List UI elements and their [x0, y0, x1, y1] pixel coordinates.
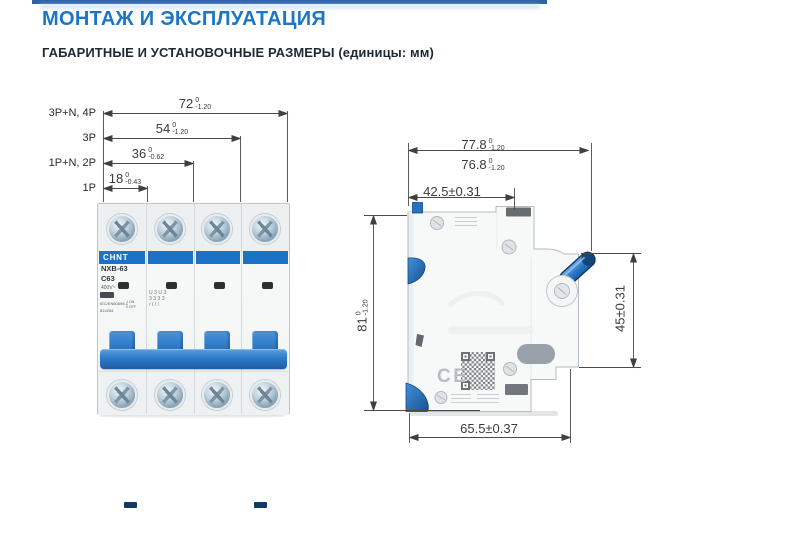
dim-36-tol-upper: 0: [148, 147, 164, 154]
dim-36-tol-lower: -0.62: [148, 154, 164, 161]
module2-marks-3: ////: [149, 302, 161, 308]
dim-81: 81 0-1.20: [354, 288, 371, 344]
side-left-shade: [409, 212, 414, 411]
module-separator: [241, 204, 242, 414]
dim-36-value: 36: [132, 146, 146, 161]
terminal-screw: [107, 214, 137, 244]
dim-54-tol-lower: -1.20: [172, 129, 188, 136]
dim-54-tol-upper: 0: [172, 122, 188, 129]
bottom-terminal-cap: [505, 384, 528, 395]
label-strip-2: [148, 251, 193, 264]
indicator-window: [166, 282, 177, 289]
brand-logo: CHNT: [99, 251, 145, 264]
side-label-window: [517, 344, 555, 364]
module-separator: [194, 204, 195, 414]
voltage-label: 400V~: [101, 285, 116, 291]
dim-65-5-value: 65.5±0.37: [460, 421, 518, 436]
dim-81-value: 81: [355, 317, 370, 331]
indicator-window: [214, 282, 225, 289]
pole-label-1p: 1P: [28, 181, 96, 195]
dim-18-tol-upper: 0: [125, 172, 141, 179]
standard-label: IEC/EN60898-1: [100, 301, 128, 306]
pole-label-4p: 3P+N, 4P: [28, 106, 96, 120]
label-strip-4: [243, 251, 288, 264]
dim-36: 36 0-0.62: [118, 145, 178, 162]
terminal-screw: [250, 214, 280, 244]
rating-label: C63: [101, 274, 115, 283]
top-clip: [413, 203, 423, 214]
indicator-window: [262, 282, 273, 289]
dim-76-8-tol-lower: -1.20: [489, 165, 505, 172]
dim-18-value: 18: [109, 171, 123, 186]
dim-77-8: 77.8 0-1.20: [449, 136, 517, 153]
pole-label-2p: 1P+N, 2P: [28, 156, 96, 170]
dim-76-8-value: 76.8: [461, 157, 486, 172]
dim-18-tol-lower: -0.43: [125, 179, 141, 186]
handle-tie-bar: [100, 349, 287, 369]
dim-72-value: 72: [179, 96, 193, 111]
off-label: 0 OFF: [126, 305, 136, 309]
dim-77-8-tol-upper: 0: [489, 138, 505, 145]
terminal-screw: [155, 380, 185, 410]
article-label: 814254: [100, 308, 113, 313]
tie-bar-notch: [254, 502, 267, 508]
label-strip-1: CHNT: [99, 251, 145, 264]
dim-77-8-value: 77.8: [461, 137, 486, 152]
dim-72: 72 0-1.20: [165, 95, 225, 112]
dim-54-value: 54: [156, 121, 170, 136]
dim-72-tol-lower: -1.20: [195, 104, 211, 111]
pole-label-3p: 3P: [28, 131, 96, 145]
dim-45: 45±0.31: [612, 278, 629, 340]
indicator-window: [118, 282, 129, 289]
ce-mark: CE: [437, 366, 468, 387]
dim-54: 54 0-1.20: [142, 120, 202, 137]
tie-bar-notch: [124, 502, 137, 508]
page-title: МОНТАЖ И ЭКСПЛУАТАЦИЯ: [42, 8, 326, 31]
module-separator: [146, 204, 147, 414]
top-terminal-cap: [506, 208, 531, 217]
dim-76-8: 76.8 0-1.20: [449, 156, 517, 173]
dim-76-8-tol-upper: 0: [489, 158, 505, 165]
dim-81-tol-lower: -1.20: [362, 299, 369, 315]
model-label: NXB-63: [101, 264, 128, 273]
on-label: I ON: [127, 300, 134, 304]
terminal-screw: [155, 214, 185, 244]
dim-72-tol-upper: 0: [195, 97, 211, 104]
dim-18: 18 0-0.43: [95, 170, 155, 187]
breaker-front-view: CHNT: [97, 203, 290, 415]
catalog-page: МОНТАЖ И ЭКСПЛУАТАЦИЯ ГАБАРИТНЫЕ И УСТАН…: [0, 0, 785, 538]
dim-77-8-tol-lower: -1.20: [489, 145, 505, 152]
certification-badge: [100, 292, 114, 298]
dim-42-5: 42.5±0.31: [414, 183, 490, 200]
dim-45-value: 45±0.31: [613, 285, 628, 332]
section-subtitle: ГАБАРИТНЫЕ И УСТАНОВОЧНЫЕ РАЗМЕРЫ (едини…: [42, 45, 434, 60]
dim-65-5: 65.5±0.37: [451, 420, 527, 437]
label-strip-3: [196, 251, 241, 264]
dim-81-tol-upper: 0: [355, 299, 362, 315]
side-view-body: CE: [406, 203, 598, 417]
terminal-screw: [250, 380, 280, 410]
terminal-screw: [107, 380, 137, 410]
dim-42-5-value: 42.5±0.31: [423, 184, 481, 199]
